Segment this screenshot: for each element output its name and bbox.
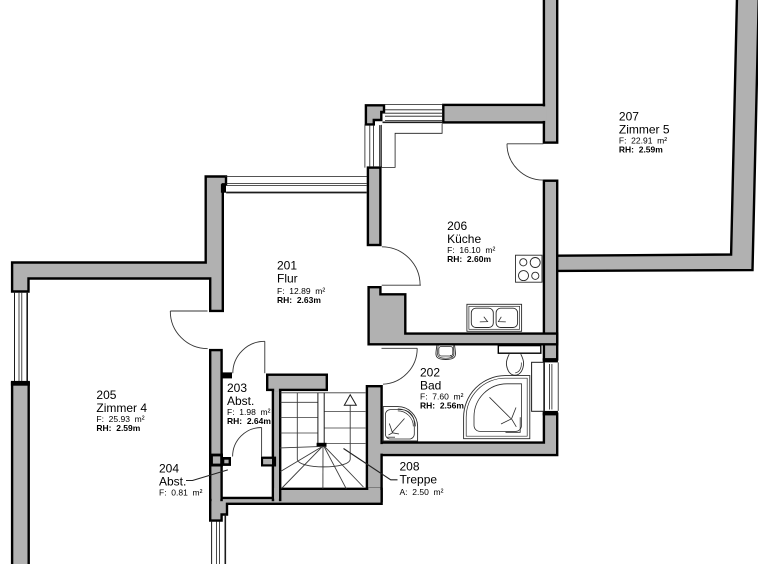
- svg-text:F: 0.81 m²: F: 0.81 m²: [159, 488, 203, 498]
- svg-text:204: 204: [159, 462, 179, 476]
- svg-text:Küche: Küche: [447, 232, 481, 246]
- svg-text:Abst.: Abst.: [159, 475, 186, 489]
- svg-text:Zimmer 5: Zimmer 5: [619, 123, 670, 137]
- svg-text:RH: 2.59m: RH: 2.59m: [96, 423, 140, 433]
- svg-text:Abst.: Abst.: [227, 394, 254, 408]
- svg-text:202: 202: [420, 365, 440, 379]
- svg-text:207: 207: [619, 110, 639, 124]
- svg-text:RH: 2.60m: RH: 2.60m: [447, 254, 491, 264]
- svg-text:RH: 2.59m: RH: 2.59m: [619, 145, 663, 155]
- svg-text:201: 201: [277, 259, 297, 273]
- svg-text:203: 203: [227, 381, 247, 395]
- svg-text:Flur: Flur: [277, 272, 298, 286]
- svg-text:Zimmer 4: Zimmer 4: [96, 401, 147, 415]
- svg-text:206: 206: [447, 219, 467, 233]
- svg-text:208: 208: [400, 460, 420, 474]
- svg-text:205: 205: [96, 388, 116, 402]
- svg-text:Bad: Bad: [420, 378, 441, 392]
- svg-text:RH: 2.64m: RH: 2.64m: [227, 416, 271, 426]
- svg-text:A: 2.50 m²: A: 2.50 m²: [400, 487, 444, 497]
- svg-text:RH: 2.63m: RH: 2.63m: [277, 295, 321, 305]
- svg-text:Treppe: Treppe: [400, 473, 438, 487]
- svg-text:RH: 2.56m: RH: 2.56m: [420, 401, 464, 411]
